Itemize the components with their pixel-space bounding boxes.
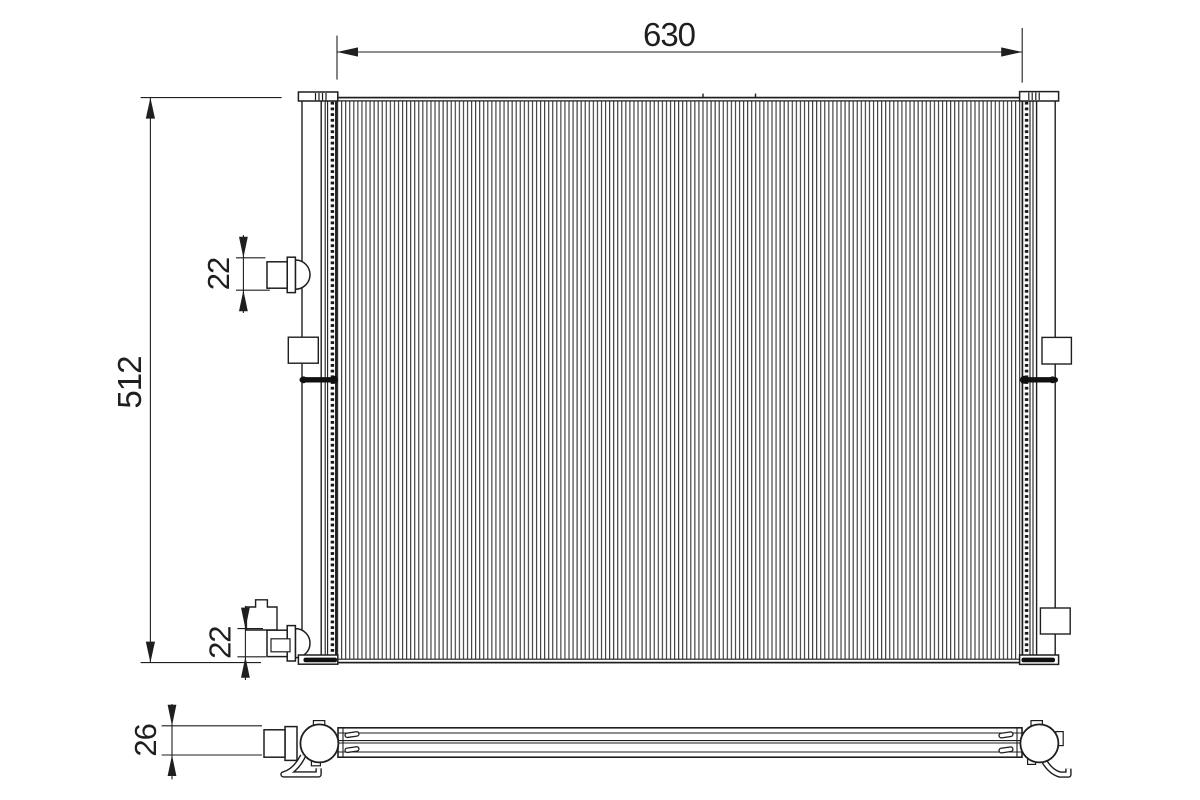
- condenser-core: [337, 94, 1023, 663]
- right-upper-bracket: [1042, 337, 1071, 364]
- arrowhead-right: [1001, 47, 1022, 56]
- left-mounting-bracket: [288, 337, 318, 363]
- arrowhead-left: [337, 47, 358, 56]
- right-top-cap: [1020, 92, 1059, 101]
- dimension-port-bottom-label: 22: [203, 626, 238, 658]
- left-bottom-cap: [298, 655, 337, 664]
- profile-left-port: [264, 730, 285, 757]
- left-tank-end: [300, 724, 338, 762]
- right-lower-bracket: [1040, 608, 1070, 634]
- dimension-depth-label: 26: [128, 724, 163, 756]
- bottom-port-fitting: [246, 600, 310, 661]
- profile-left-end: [264, 721, 338, 775]
- arrowhead-up: [146, 98, 155, 119]
- top-port-fitting: [267, 257, 310, 292]
- arrowhead-down: [239, 237, 248, 258]
- dimension-height: 512: [111, 98, 282, 663]
- left-tank-assembly: [246, 92, 338, 664]
- profile-view: [264, 721, 1068, 775]
- arrowhead-up: [168, 755, 177, 776]
- dimension-depth: 26: [128, 704, 262, 779]
- dimension-width-label: 630: [643, 16, 696, 53]
- arrowhead-up: [239, 290, 248, 311]
- right-bottom-cap: [1020, 655, 1059, 664]
- arrowhead-up: [241, 657, 250, 678]
- right-tank-end: [1020, 724, 1058, 762]
- right-tank-assembly: [1020, 92, 1072, 665]
- dimension-height-label: 512: [111, 357, 148, 409]
- arrowhead-down: [146, 642, 155, 663]
- condenser-drawing: 630 512 22 22: [0, 0, 1200, 800]
- drawing-canvas: 630 512 22 22: [0, 0, 1200, 800]
- fin-area: [337, 101, 1022, 659]
- arrowhead-down: [168, 705, 177, 726]
- left-top-cap: [298, 92, 337, 101]
- dimension-port-top-label: 22: [201, 258, 236, 290]
- profile-right-end: [1020, 721, 1068, 775]
- bottom-bracket: [246, 600, 277, 630]
- front-view: [246, 92, 1071, 665]
- dimension-width: 630: [337, 16, 1022, 83]
- dimension-port-top: 22: [201, 235, 270, 313]
